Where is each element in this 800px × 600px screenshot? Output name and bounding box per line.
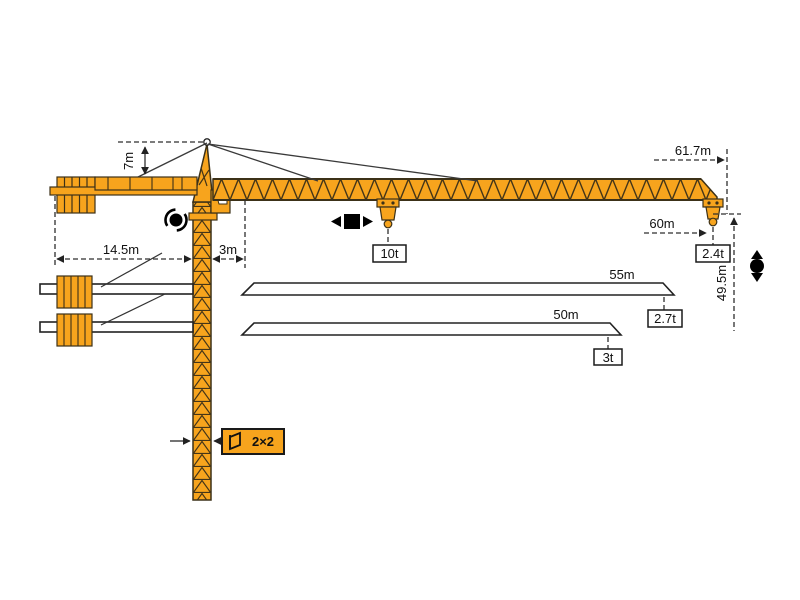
jib-option-50m: 50m 3t [242,307,622,365]
hoist-icon [750,250,764,282]
slew-rotation-icon [161,205,190,234]
jib-50m-label: 50m [553,307,578,322]
load-max-capacity: 10t [373,229,406,262]
trolley-hook [377,199,399,228]
dim-49-5m-label: 49.5m [714,265,729,301]
dim-7m-label: 7m [121,152,136,170]
load-2-4t-label: 2.4t [702,246,724,261]
dim-61-7m-label: 61.7m [675,143,711,158]
tower-crane-diagram: 7m 14.5m 3m 61.7m 60m 49.5m 10t 2.4t [0,0,800,600]
dim-head-height: 7m [118,142,203,174]
jib [213,179,717,200]
tip-trolley-hook [703,199,723,226]
slew-collar [189,213,217,220]
mast-section-callout: 2×2 [170,429,284,454]
counter-jib [50,177,197,213]
dim-3m-label: 3m [219,242,237,257]
mast [189,202,217,500]
dim-14-5m-label: 14.5m [103,242,139,257]
load-2-7t-label: 2.7t [654,311,676,326]
ballast-bar-upper [40,253,193,308]
load-10t-label: 10t [380,246,398,261]
jib-55m-label: 55m [609,267,634,282]
load-3t-label: 3t [603,350,614,365]
page: 7m 14.5m 3m 61.7m 60m 49.5m 10t 2.4t [0,0,800,600]
dim-tip-radius: 60m [644,216,706,233]
trolley-travel-icon [331,214,373,229]
jib-option-55m: 55m 2.7t [242,267,682,327]
dim-hook-height: 49.5m [713,214,741,331]
load-tip-2-4t: 2.4t [696,227,730,262]
dim-60m-label: 60m [649,216,674,231]
mast-section-label: 2×2 [252,434,274,449]
tie-cables [138,143,478,181]
